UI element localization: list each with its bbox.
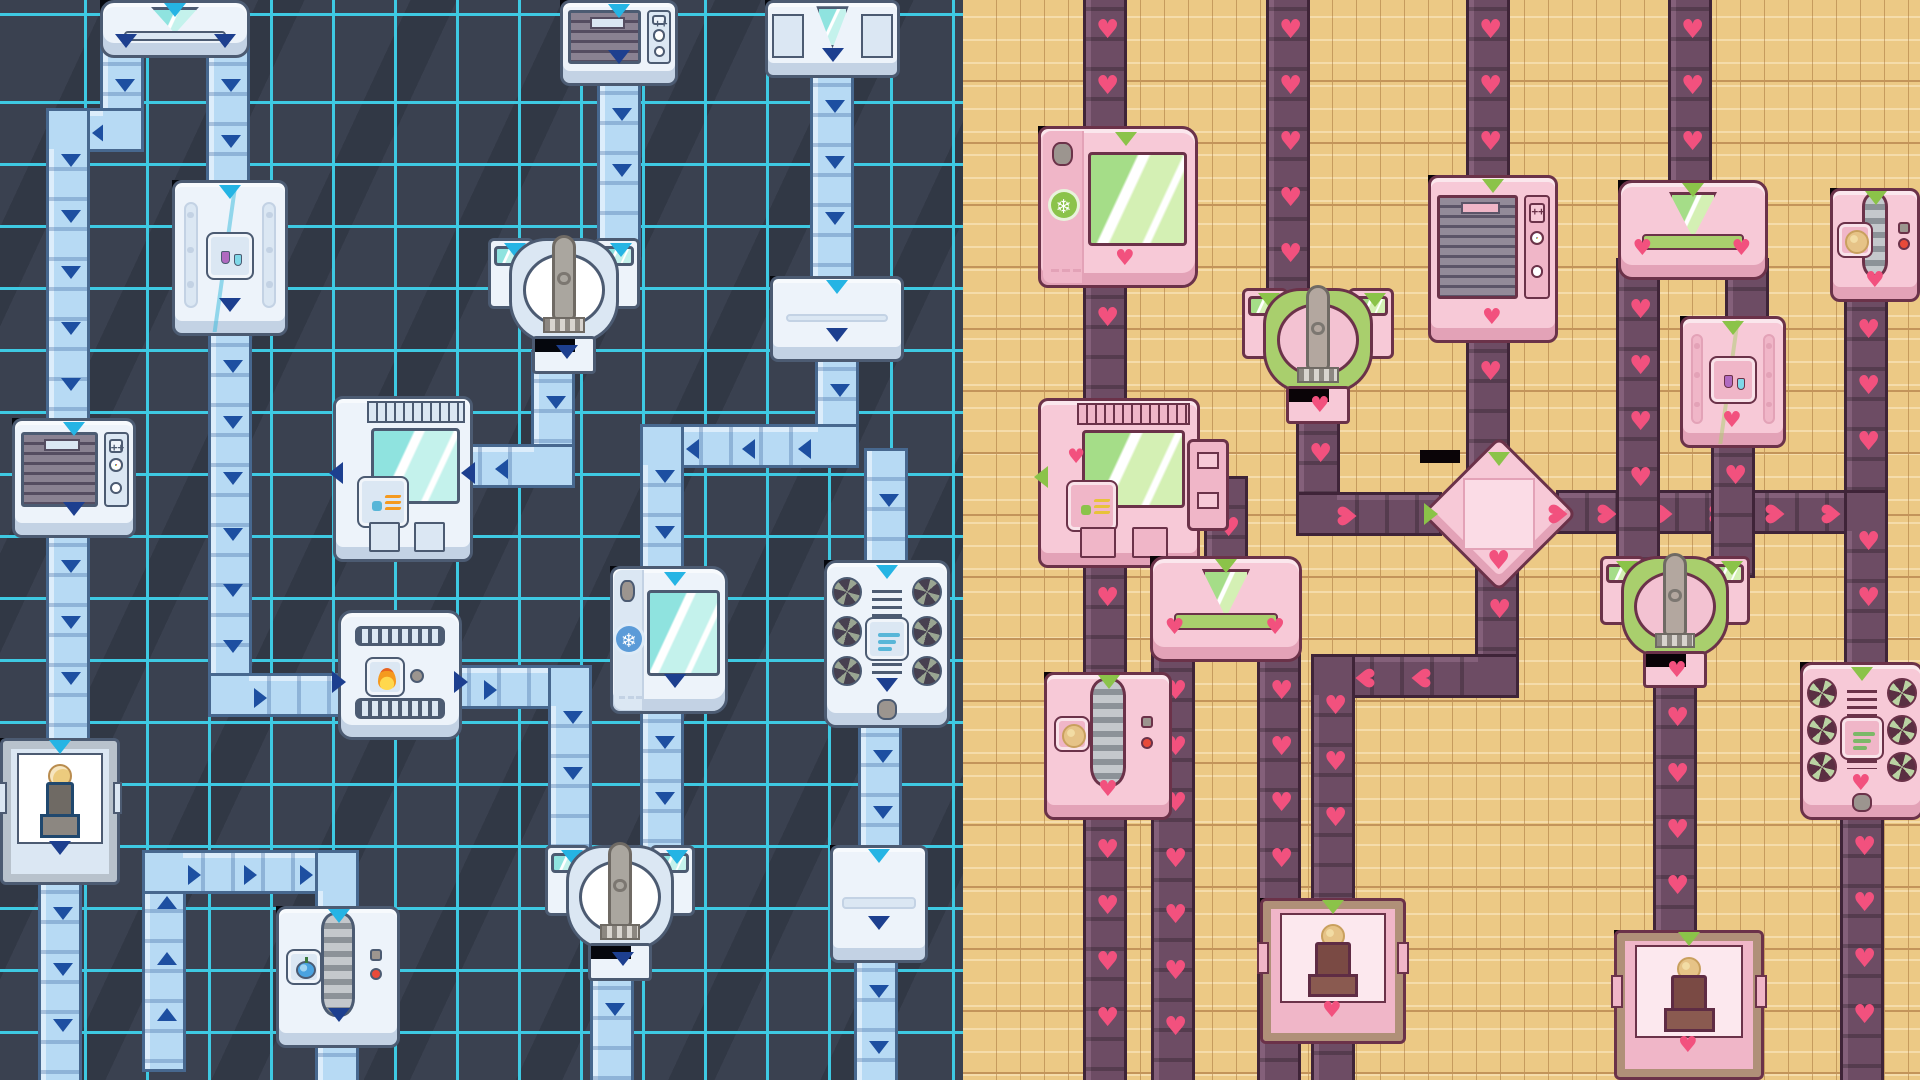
flow-arrow-marker <box>332 671 346 693</box>
vent-strip <box>355 626 444 647</box>
input-arrow-marker <box>328 909 350 923</box>
conveyor-belt-segment[interactable]: ♥♥♥♥ <box>1616 258 1660 578</box>
input-arrow-marker <box>1678 932 1700 946</box>
conveyor-belt-segment[interactable]: ♥♥♥ <box>1668 0 1712 202</box>
output-heart-marker: ♥ <box>1098 779 1118 801</box>
mint-machine[interactable]: ♥ <box>1614 930 1764 1080</box>
conveyor-belt-segment[interactable]: ♥♥♥♥ <box>1840 795 1884 1080</box>
plus-buttons-icon: ++ <box>652 15 666 25</box>
belt-corner[interactable] <box>103 111 141 149</box>
dock-machine[interactable] <box>765 0 900 78</box>
belt-heart-arrow: ♥ <box>1336 504 1362 527</box>
belt-heart-arrow: ♥ <box>1279 185 1302 211</box>
rail-dot <box>266 281 272 287</box>
belt-heart-arrow: ♥ <box>1096 893 1119 919</box>
belt-chevron-arrow <box>221 79 241 92</box>
flask-icon-a <box>1724 375 1733 388</box>
belt-corner[interactable] <box>211 676 249 714</box>
belt-chevron-arrow <box>61 266 81 279</box>
heat-waves-icon <box>384 495 401 498</box>
freezer-machine[interactable]: ❄♥ <box>1038 126 1198 288</box>
roller-stack <box>321 912 356 1017</box>
flow-arrow-marker <box>454 671 468 693</box>
belt-chevron-arrow <box>254 688 267 708</box>
belt-chevron-arrow <box>546 396 566 409</box>
splitter_y-machine[interactable] <box>100 0 250 58</box>
input-arrow-marker <box>608 4 630 18</box>
splitter-band <box>1174 613 1277 630</box>
input-arrow-marker <box>63 422 85 436</box>
arm-housing <box>509 238 618 344</box>
output-arrow-marker <box>219 298 241 312</box>
belt-heart-arrow: ♥ <box>1629 297 1652 323</box>
relay-groove <box>842 897 916 909</box>
belt-chevron-arrow <box>223 640 243 653</box>
input-arrow-marker <box>1115 132 1137 146</box>
lab-machine[interactable] <box>172 180 288 336</box>
frame-flange <box>1397 942 1409 974</box>
belt-heart-arrow: ♥ <box>1164 902 1187 928</box>
output-heart-marker: ♥ <box>1165 617 1185 639</box>
belt-heart-arrow: ♥ <box>1324 805 1347 831</box>
belt-corner[interactable] <box>318 853 356 891</box>
freezer-machine[interactable]: ❄ <box>610 566 728 714</box>
belt-corner[interactable] <box>534 447 572 485</box>
belt-heart-arrow: ♥ <box>1279 129 1302 155</box>
belt-chevron-arrow <box>53 1019 73 1032</box>
belt-chevron-arrow <box>495 459 508 479</box>
rail-dot <box>1766 372 1772 378</box>
belt-heart-arrow: ♥ <box>1666 761 1689 787</box>
splitter-band <box>124 31 226 40</box>
fan-icon <box>1887 715 1917 745</box>
wind-icon <box>878 647 892 651</box>
heatsink-comb <box>1077 403 1190 425</box>
flask-icon-a <box>221 251 230 264</box>
conveyor-belt-segment[interactable] <box>46 108 90 440</box>
rail-dot <box>1694 402 1700 408</box>
output-arrow-marker <box>556 345 578 359</box>
rail-dot <box>1694 343 1700 349</box>
input-arrow-marker <box>1034 466 1048 488</box>
heat-waves-icon <box>384 507 401 510</box>
belt-heart-arrow: ♥ <box>1629 465 1652 491</box>
belt-heart-arrow: ♥ <box>1820 502 1846 525</box>
robot-arm <box>1663 553 1687 636</box>
belt-chevron-arrow <box>605 1003 625 1016</box>
flask-icon-b <box>234 254 242 266</box>
belt-heart-arrow: ♥ <box>1270 678 1293 704</box>
input-arrow-marker <box>664 572 686 586</box>
icon-badge <box>1054 716 1090 752</box>
conveyor-belt-segment[interactable]: ♥♥♥♥ <box>1653 666 1697 952</box>
output-arrow-marker <box>822 48 844 62</box>
conveyor-belt-segment[interactable]: ♥♥♥ <box>1466 0 1510 197</box>
fan-icon <box>1887 678 1917 708</box>
roller-machine[interactable]: ♥ <box>1830 188 1920 302</box>
conveyor-belt-segment[interactable] <box>640 690 684 867</box>
belt-heart-arrow: ♥ <box>1164 846 1187 872</box>
flask-icon-b <box>1737 378 1745 390</box>
frame-flange <box>0 782 7 814</box>
belt-heart-arrow: ♥ <box>1164 1014 1187 1040</box>
belt-heart-arrow: ♥ <box>1096 17 1119 43</box>
roller-machine[interactable] <box>276 906 400 1048</box>
output-tab <box>588 943 652 981</box>
grabber-machine[interactable] <box>545 845 695 981</box>
icon-badge <box>1840 716 1884 760</box>
plus-buttons-icon: ++ <box>109 439 124 453</box>
grille-vents <box>568 10 641 63</box>
input-arrow-marker <box>1424 503 1438 525</box>
heat-waves-icon <box>1093 505 1110 508</box>
control-panel: ++ <box>1524 195 1550 299</box>
output-heart-marker: ♥ <box>1067 446 1085 466</box>
rail-dot <box>1766 343 1772 349</box>
robot-arm <box>552 235 577 321</box>
conveyor-belt-segment[interactable]: ♥♥♥♥ <box>1083 798 1127 1080</box>
belt-heart-arrow: ♥ <box>1164 958 1187 984</box>
belt-corner[interactable] <box>818 427 856 465</box>
rail-dot <box>266 247 272 253</box>
grey-button <box>1898 222 1910 234</box>
belt-corner[interactable] <box>1478 657 1516 695</box>
conveyor-belt-segment[interactable] <box>206 33 250 202</box>
output-heart-marker: ♥ <box>1633 238 1653 260</box>
vent-dots <box>1051 269 1059 272</box>
grille-top-tray <box>44 439 81 451</box>
grabber-machine[interactable]: ♥ <box>1242 288 1394 424</box>
input-arrow-marker <box>1865 191 1887 205</box>
gripper-teeth <box>1297 367 1338 383</box>
roller-machine[interactable]: ♥ <box>1044 672 1172 820</box>
side-rail <box>1763 334 1776 424</box>
robot-arm <box>1306 285 1331 371</box>
side-attachment-box <box>1187 439 1229 531</box>
belt-heart-arrow: ♥ <box>1857 317 1880 343</box>
input-arrow-marker <box>1322 900 1344 914</box>
vent-dots <box>619 696 625 699</box>
conveyor-belt-segment[interactable] <box>38 861 82 1080</box>
grey-button <box>370 949 382 961</box>
belt-chevron-arrow <box>869 985 889 998</box>
output-arrow-marker <box>63 502 85 516</box>
machine-foot <box>1080 527 1116 558</box>
hinge-capsule <box>620 580 635 602</box>
lab-machine[interactable]: ♥ <box>1680 316 1786 448</box>
flame-icon <box>378 668 396 690</box>
fan-icon <box>832 656 862 686</box>
conveyor-belt-segment[interactable] <box>597 62 641 260</box>
fan-icon <box>1887 752 1917 782</box>
belt-chevron-arrow <box>223 528 243 541</box>
fan-icon <box>912 616 942 646</box>
belt-chevron-arrow <box>825 212 845 225</box>
mint-machine[interactable]: ♥ <box>1260 898 1406 1044</box>
input-arrow-marker <box>826 280 848 294</box>
belt-chevron-arrow <box>157 952 177 965</box>
belt-heart-arrow: ♥ <box>1279 73 1302 99</box>
wind-icon <box>878 640 896 644</box>
belt-chevron-arrow <box>61 210 81 223</box>
rail-dot <box>187 247 193 253</box>
belt-heart-arrow: ♥ <box>1681 17 1704 43</box>
arm-joint-ring <box>1311 322 1325 336</box>
belt-heart-arrow: ♥ <box>1479 73 1502 99</box>
arm-housing <box>1621 556 1729 659</box>
cookie-icon <box>1845 230 1869 254</box>
output-heart-marker: ♥ <box>1865 270 1885 292</box>
hinge-column: ❄ <box>614 570 645 709</box>
belt-heart-arrow: ♥ <box>1853 946 1876 972</box>
input-arrow-marker <box>1482 179 1504 193</box>
grabber-machine[interactable] <box>488 238 640 374</box>
belt-heart-arrow: ♥ <box>1279 241 1302 267</box>
grille-top-tray <box>590 17 625 29</box>
input-arrow-marker <box>49 740 71 754</box>
furnace-machine[interactable] <box>338 610 462 740</box>
snowflake-icon: ❄ <box>613 623 645 655</box>
diamond-center-plate <box>1463 478 1536 551</box>
fan-icon <box>832 577 862 607</box>
glass-window <box>647 590 720 676</box>
output-tab <box>532 336 596 374</box>
fan-icon <box>1807 715 1837 745</box>
splitter_y-machine[interactable]: ♥♥ <box>1150 556 1302 662</box>
output-tab: ♥ <box>1286 386 1350 424</box>
conveyor-belt-segment[interactable] <box>810 54 854 298</box>
input-arrow-marker <box>1851 667 1873 681</box>
output-arrow-marker <box>868 916 890 930</box>
belt-heart-arrow: ♥ <box>1681 129 1704 155</box>
belt-heart-arrow: ♥ <box>1270 790 1293 816</box>
frame-flange <box>113 782 123 814</box>
fan-icon <box>1807 752 1837 782</box>
belt-heart-arrow: ♥ <box>1857 429 1880 455</box>
hinge-capsule <box>1052 142 1073 166</box>
machine-foot <box>369 522 400 552</box>
belt-chevron-arrow <box>244 865 257 885</box>
belt-chevron-arrow <box>61 322 81 335</box>
relay-machine[interactable] <box>830 845 928 963</box>
belt-corner[interactable] <box>551 668 589 706</box>
press-base <box>1664 1008 1715 1032</box>
belt-chevron-arrow <box>830 384 850 397</box>
heater-machine[interactable] <box>333 396 473 562</box>
input-arrow-marker <box>1098 675 1120 689</box>
control-panel: ++ <box>647 10 671 63</box>
vent-dots <box>1062 269 1070 272</box>
fan-machine[interactable] <box>824 560 950 728</box>
belt-chevron-arrow <box>742 439 755 459</box>
belt-chevron-arrow <box>223 584 243 597</box>
timer-clock-icon <box>654 46 665 57</box>
timer-clock-icon <box>110 482 122 494</box>
belt-chevron-arrow <box>157 1008 177 1021</box>
input-arrow-marker <box>1682 183 1704 197</box>
belt-chevron-arrow <box>563 711 583 724</box>
press-base <box>1308 974 1358 997</box>
belt-chevron-arrow <box>61 672 81 685</box>
belt-chevron-arrow <box>825 100 845 113</box>
output-heart-marker: ♥ <box>1115 248 1135 270</box>
icon-badge <box>365 657 405 697</box>
belt-chevron-arrow <box>869 1041 889 1054</box>
conveyor-belt-segment[interactable] <box>858 704 902 867</box>
heater-machine[interactable]: ♥ <box>1038 398 1200 568</box>
belt-heart-arrow: ♥ <box>1324 749 1347 775</box>
conveyor-belt-segment[interactable]: ♥ <box>1083 266 1127 420</box>
rail-dot <box>266 212 272 218</box>
belt-corner[interactable] <box>1314 657 1352 695</box>
heat-waves-icon <box>1093 499 1110 502</box>
belt-chevron-arrow <box>879 494 899 507</box>
input-arrow-marker <box>461 462 475 484</box>
diamond-machine[interactable]: ♥♥ <box>1420 450 1578 578</box>
vent-strip <box>355 698 444 719</box>
glass-window <box>1088 152 1187 246</box>
belt-chevron-arrow <box>686 439 699 459</box>
output-arrow-marker <box>826 328 848 342</box>
belt-chevron-arrow <box>61 154 81 167</box>
arm-housing <box>566 845 674 951</box>
belt-heart-arrow: ♥ <box>1488 597 1511 623</box>
frame-flange <box>1257 942 1269 974</box>
belt-chevron-arrow <box>825 156 845 169</box>
factory-scene: ♥♥♥♥♥♥♥♥♥♥♥♥♥♥♥♥♥♥♥♥♥♥♥♥♥♥♥♥♥♥♥♥♥♥♥♥♥♥♥♥… <box>0 0 1920 1080</box>
belt-corner[interactable] <box>145 853 183 891</box>
output-heart-marker: ♥ <box>1851 773 1871 795</box>
conveyor-belt-segment[interactable] <box>46 514 90 760</box>
heat-waves-icon <box>384 501 401 504</box>
belt-heart-arrow: ♥ <box>1096 949 1119 975</box>
belt-heart-arrow: ♥ <box>1309 441 1332 467</box>
grabber-machine[interactable]: ♥ <box>1600 556 1750 688</box>
robot-arm <box>608 842 632 928</box>
belt-chevron-arrow <box>53 963 73 976</box>
mint-machine[interactable] <box>0 738 120 885</box>
belt-heart-arrow: ♥ <box>1324 693 1347 719</box>
belt-chevron-arrow <box>612 108 632 121</box>
icon-badge <box>206 232 254 280</box>
belt-corner[interactable] <box>1299 495 1337 533</box>
conveyor-belt-segment[interactable] <box>208 314 252 717</box>
belt-chevron-arrow <box>223 416 243 429</box>
relay-machine[interactable] <box>770 276 904 362</box>
output-tab: ♥ <box>1643 651 1707 688</box>
output-heart-marker: ♥ <box>1310 395 1330 417</box>
wind-icon <box>1853 746 1867 750</box>
output-arrow-marker <box>328 1008 350 1022</box>
input-arrow-marker <box>329 462 343 484</box>
side-box-slot <box>1197 452 1219 469</box>
grille-top-tray <box>1461 202 1500 214</box>
output-heart-marker: ♥ <box>1722 410 1742 432</box>
fan-machine[interactable]: ♥ <box>1800 662 1920 820</box>
output-arrow-marker <box>214 34 236 48</box>
color-dial-icon <box>1530 231 1544 245</box>
belt-heart-arrow: ♥ <box>1629 353 1652 379</box>
ac-machine[interactable]: ++ <box>560 0 678 86</box>
arm-housing <box>1263 288 1372 394</box>
splitter_y-machine[interactable]: ♥♥ <box>1618 180 1768 280</box>
timer-clock-icon <box>1531 265 1543 277</box>
fan-icon <box>832 616 862 646</box>
belt-chevron-arrow <box>484 680 497 700</box>
icon-badge <box>357 476 409 528</box>
output-arrow-marker <box>612 952 634 966</box>
belt-chevron-arrow <box>157 896 177 909</box>
dock-pad <box>861 14 893 58</box>
gripper-teeth <box>600 924 641 940</box>
arm-joint-ring <box>557 272 571 286</box>
ac-machine[interactable]: ++♥ <box>1428 175 1558 343</box>
output-heart-marker: ♥ <box>1322 1000 1342 1022</box>
output-arrow-marker <box>608 50 630 64</box>
conveyor-belt-segment[interactable]: ♥♥♥♥♥ <box>1266 0 1310 310</box>
color-dial-icon <box>109 458 122 471</box>
belt-heart-arrow: ♥ <box>1270 846 1293 872</box>
belt-heart-arrow: ♥ <box>1853 1002 1876 1028</box>
press-base <box>40 814 81 838</box>
input-arrow-marker <box>876 565 898 579</box>
icon-badge <box>865 617 909 661</box>
input-arrow-marker <box>1722 321 1744 335</box>
belt-heart-arrow: ♥ <box>1096 585 1119 611</box>
belt-chevron-arrow <box>873 806 893 819</box>
wind-icon <box>878 633 900 637</box>
belt-chevron-arrow <box>61 560 81 573</box>
belt-heart-arrow: ♥ <box>1666 817 1689 843</box>
input-arrow-marker <box>868 849 890 863</box>
belt-corner[interactable] <box>49 111 87 149</box>
icon-badge <box>1709 356 1757 404</box>
belt-heart-arrow: ♥ <box>1764 502 1790 525</box>
input-arrow-marker <box>219 185 241 199</box>
dock-pad <box>772 14 804 58</box>
round-button <box>410 669 424 683</box>
rail-dot <box>1694 372 1700 378</box>
hinge-column: ❄ <box>1043 131 1085 283</box>
belt-corner[interactable] <box>643 427 681 465</box>
belt-corner[interactable] <box>1847 493 1885 531</box>
belt-chevron-arrow <box>655 736 675 749</box>
belt-chevron-arrow <box>188 865 201 885</box>
fan-icon <box>1807 678 1837 708</box>
frame-flange <box>1755 975 1767 1008</box>
belt-heart-arrow: ♥ <box>1853 890 1876 916</box>
machine-foot <box>414 522 445 552</box>
belt-chevron-arrow <box>115 79 135 92</box>
wind-icon <box>1853 732 1875 736</box>
belt-heart-arrow: ♥ <box>1270 734 1293 760</box>
belt-heart-arrow: ♥ <box>1857 529 1880 555</box>
belt-heart-arrow: ♥ <box>1724 463 1747 489</box>
ac-machine[interactable]: ++ <box>12 418 136 538</box>
belt-chevron-arrow <box>223 472 243 485</box>
belt-chevron-arrow <box>612 164 632 177</box>
belt-heart-arrow: ♥ <box>1407 666 1433 689</box>
output-heart-marker: ♥ <box>1678 1035 1698 1057</box>
input-arrow-marker <box>1215 559 1237 573</box>
handle-capsule <box>1852 793 1872 812</box>
heat-waves-icon <box>1093 511 1110 514</box>
icon-badge <box>286 949 322 985</box>
splitter-band <box>1642 234 1744 250</box>
belt-chevron-arrow <box>873 750 893 763</box>
output-arrow-marker <box>876 678 898 692</box>
output-heart-marker: ♥ <box>1487 548 1510 574</box>
